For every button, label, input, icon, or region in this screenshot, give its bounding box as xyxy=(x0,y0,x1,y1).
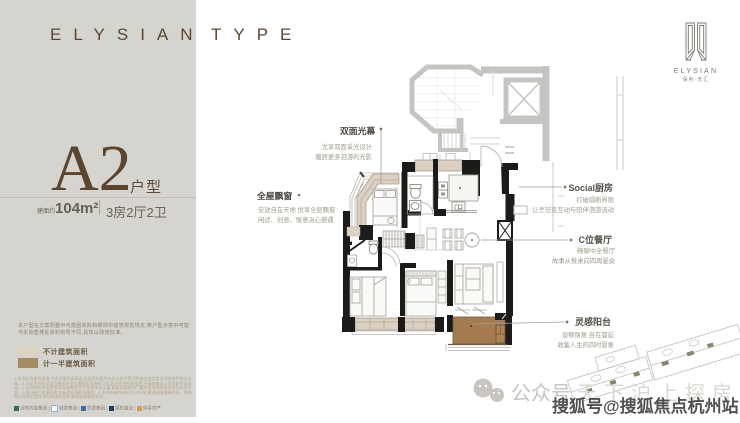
svg-text:打破隔断界限: 打破隔断界限 xyxy=(576,195,614,204)
svg-text:让烹饪变互动与陪伴洄游流动: 让烹饪变互动与陪伴洄游流动 xyxy=(532,205,614,214)
svg-text:Social厨房: Social厨房 xyxy=(568,182,613,193)
svg-text:C位餐厅: C位餐厅 xyxy=(579,234,613,245)
svg-text:ELYSIAN: ELYSIAN xyxy=(674,68,718,75)
svg-text:保利·天汇: 保利·天汇 xyxy=(683,76,710,83)
svg-text:暖居更多洄游的光影: 暖居更多洄游的光影 xyxy=(315,152,372,161)
svg-text:安放自在天地 悦享全层飘窗: 安放自在天地 悦享全层飘窗 xyxy=(258,205,335,214)
svg-text:畅聊中全餐厅: 畅聊中全餐厅 xyxy=(577,246,615,255)
svg-text:全屋飘窗: 全屋飘窗 xyxy=(256,190,292,201)
svg-text:双面光幕: 双面光幕 xyxy=(340,125,375,136)
svg-text:收集人生的四时景象: 收集人生的四时景象 xyxy=(557,340,614,349)
svg-text:灵感阳台: 灵感阳台 xyxy=(574,316,611,327)
svg-text:搜狐号@搜狐焦点杭州站: 搜狐号@搜狐焦点杭州站 xyxy=(552,396,739,416)
svg-text:尤享双面采光设计: 尤享双面采光设计 xyxy=(322,142,373,151)
svg-text:谈够惬意 自在蔓延: 谈够惬意 自在蔓延 xyxy=(562,330,615,339)
svg-text:闲适、创意、惬意冶心憩遇: 闲适、创意、惬意冶心憩遇 xyxy=(258,215,334,224)
svg-text:故事从餐桌向四周晕染: 故事从餐桌向四周晕染 xyxy=(552,256,616,265)
